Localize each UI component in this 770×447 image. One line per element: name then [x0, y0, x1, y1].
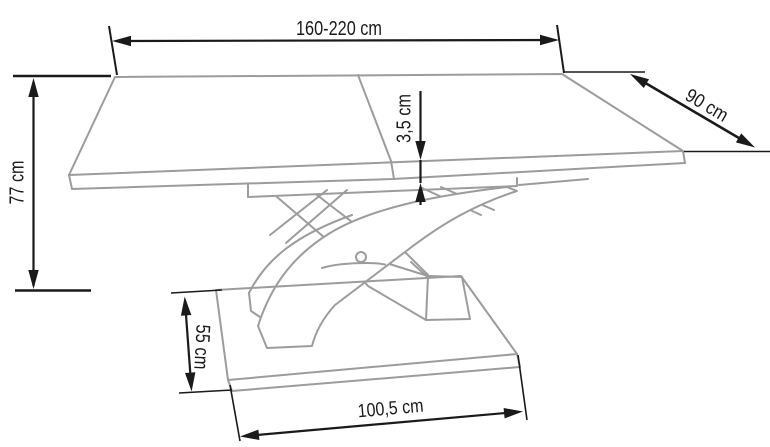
svg-text:55 cm: 55 cm: [189, 324, 213, 370]
svg-text:160-220 cm: 160-220 cm: [296, 18, 382, 40]
svg-text:3,5 cm: 3,5 cm: [394, 94, 416, 143]
svg-text:77 cm: 77 cm: [7, 161, 29, 205]
